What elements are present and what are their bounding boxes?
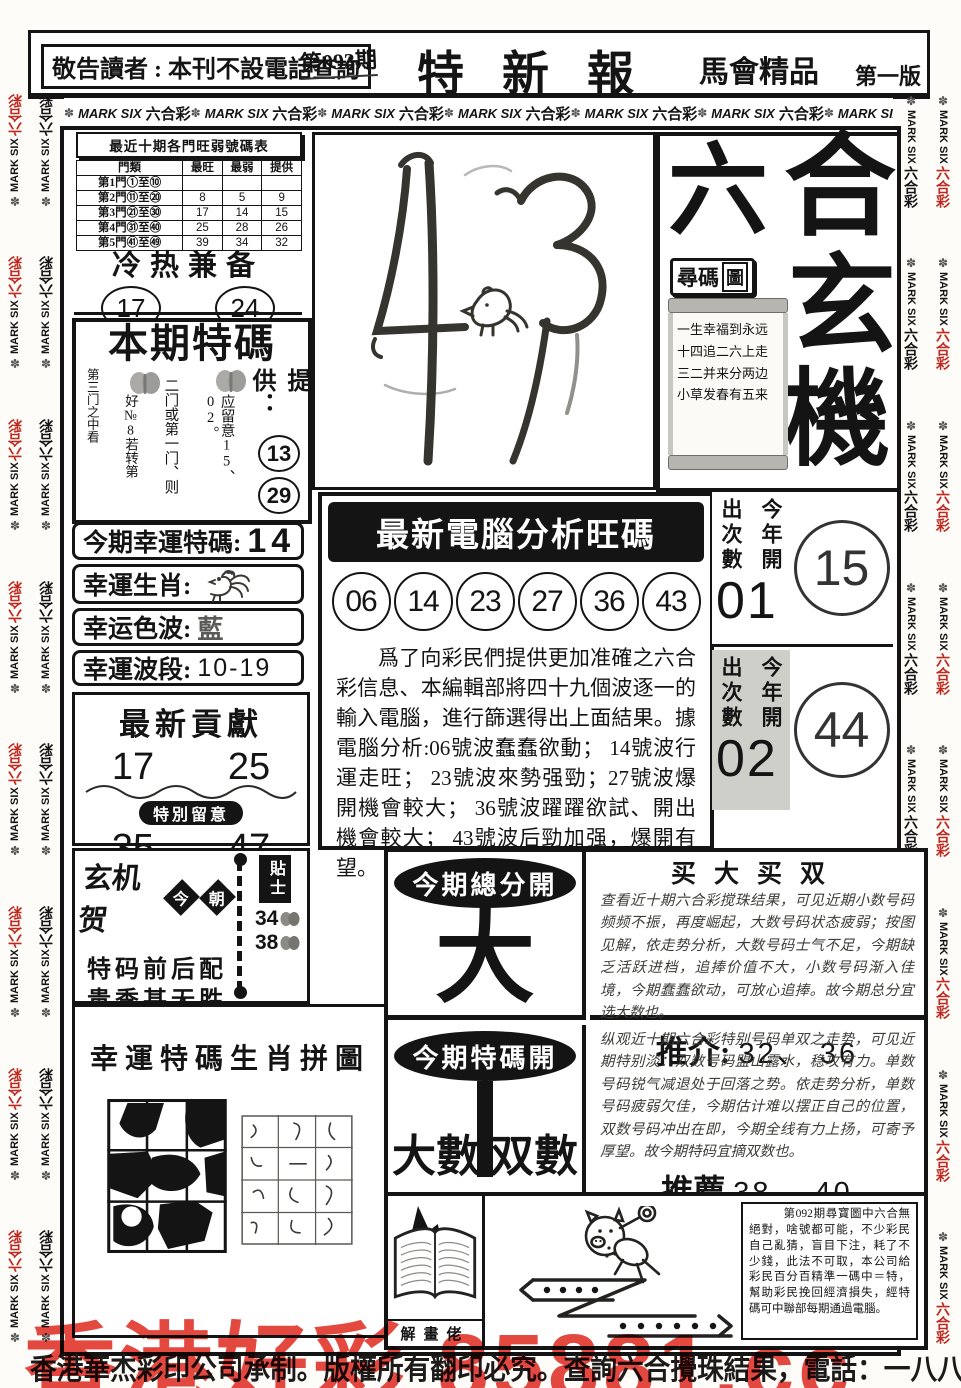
gate-cell: 第4門㉛至㊵ (77, 221, 183, 236)
give-cell: 26 (262, 221, 302, 236)
strokes-grid (241, 1115, 353, 1245)
flower-icon: ✽ (938, 256, 948, 270)
left-inner-border: ✽MARK SIX六合彩 ✽MARK SIX六合彩 ✽MARK SIX六合彩 ✽… (32, 94, 60, 1344)
table-row: 第4門㉛至㊵ 25 28 26 (77, 221, 302, 236)
xuanji-title: 玄机贺 (77, 855, 166, 939)
border-unit: ✽MARK SIX六合彩 (933, 581, 953, 695)
issue-number: 第093期 (299, 42, 378, 80)
contribution-title: 最新貢獻 (75, 699, 307, 744)
flower-icon: ✽ (906, 419, 916, 433)
hot-cell: 8 (183, 191, 223, 206)
lucky-code-label: 今期幸運特碼: (83, 523, 241, 559)
rooster-icon (197, 566, 251, 602)
lucky-range-label: 幸運波段: (83, 650, 191, 686)
divider-dot (234, 986, 247, 999)
special-open-values: 大數 双數 (388, 1120, 582, 1184)
liuhecai-text: 六合彩 (5, 906, 25, 948)
flower-icon: ✽ (906, 94, 916, 108)
buy-big-cell: 买大买双 查看近十期六合彩搅珠结果，可见近期小数号码频频不振，再度崛起，大数号码… (590, 852, 924, 1020)
total-split-badge: 今期總分開 (394, 858, 576, 908)
liuhecai-text: 六合彩 (779, 103, 824, 124)
liuhecai-text: 六合彩 (652, 103, 697, 124)
xuanji-verse-line: 特码前后配 (81, 955, 233, 986)
mark-six-text: MARK SIX (711, 106, 775, 121)
flower-icon: ✽ (906, 581, 916, 595)
border-unit: ✽MARK SIX六合彩 (824, 103, 893, 124)
flower-icon: ✽ (571, 106, 581, 120)
liuhecai-text: 六合彩 (901, 328, 921, 370)
tip-number-row: 34 (255, 907, 307, 931)
flower-icon: ✽ (938, 419, 948, 433)
table-row: 第1門①至⑩ (77, 176, 302, 191)
border-unit: ✽MARK SIX六合彩 (901, 419, 921, 533)
provide-label: 提供： (244, 368, 314, 430)
mark-six-text: MARK SIX (458, 106, 522, 121)
hot-cell: 25 (183, 221, 223, 236)
border-unit: ✽MARK SIX六合彩 (933, 1068, 953, 1182)
hot-cell: 17 (183, 206, 223, 221)
zodiac-puzzle-box: 幸運特碼生肖拼圖 (72, 1004, 388, 1338)
special-code-box: 本期特碼 第三门之中看 好№8若转第 二门或第一门、则 应留意15、02。 提供… (72, 318, 312, 524)
col-gate: 門類 (77, 161, 183, 176)
cold-hot-title: 冷热兼备 (74, 242, 302, 284)
contribution-number: 25 (228, 746, 270, 789)
number-ball: 43 (642, 572, 701, 631)
left-outer-border: ✽MARK SIX六合彩 ✽MARK SIX六合彩 ✽MARK SIX六合彩 ✽… (3, 94, 27, 1344)
seek-code-text: 尋碼 (677, 262, 719, 292)
appearance-labels: 出次數 今年開 02 (712, 650, 790, 810)
flower-icon: ✽ (10, 356, 20, 370)
big-char: 合 (784, 132, 896, 244)
mark-six-text: MARK SIX (937, 1084, 949, 1138)
flower-icon: ✽ (906, 743, 916, 757)
mark-six-text: MARK SIX (905, 435, 917, 489)
flower-icon: ✽ (10, 843, 20, 857)
border-unit: ✽MARK SIX六合彩 (933, 1230, 953, 1344)
right-outer-border: ✽MARK SIX六合彩 ✽MARK SIX六合彩 ✽MARK SIX六合彩 ✽… (929, 94, 957, 1344)
liuhecai-text: 六合彩 (901, 490, 921, 532)
xuanji-main: 玄机贺 今 朝 特码前后配 贵季甚无胜 (75, 851, 235, 1001)
flower-icon: ✽ (41, 356, 51, 370)
moth-icon (214, 368, 248, 398)
paper-subtitle: 馬會精品 (699, 47, 819, 91)
border-unit: ✽MARK SIX六合彩 (36, 743, 56, 857)
liuhecai-text: 六合彩 (933, 815, 953, 857)
mark-six-text: MARK SIX (331, 106, 395, 121)
appearance-block-02: 出次數 今年開 02 44 (712, 650, 893, 810)
border-unit: ✽MARK SIX六合彩 (697, 103, 824, 124)
scroll-top-rail (668, 298, 788, 313)
liuhecai-text: 六合彩 (933, 490, 953, 532)
flower-icon: ✽ (938, 906, 948, 920)
tip-number: 29 (258, 477, 300, 514)
tip-number: 34 (255, 907, 278, 931)
appearance-count: 02 (716, 733, 786, 785)
border-unit: ✽MARK SIX六合彩 (191, 103, 318, 124)
poem-line: 十四追二六上走 (677, 341, 779, 363)
mark-six-text: MARK SIX (937, 597, 949, 651)
liuhecai-text: 六合彩 (399, 103, 444, 124)
divider-dot (234, 853, 247, 866)
liuhecai-text: 六合彩 (5, 1068, 25, 1110)
tips-label: 貼士 (259, 855, 291, 903)
dashed-divider (237, 861, 242, 991)
flower-icon: ✽ (938, 581, 948, 595)
give-cell (262, 176, 302, 191)
tip-column-3: 二门或第一门、则 (161, 368, 177, 514)
flower-icon: ✽ (10, 1005, 20, 1019)
tip-number-row: 38 (255, 931, 307, 955)
flower-icon: ✽ (41, 518, 51, 532)
tip-column-1: 第三门之中看 (84, 368, 98, 514)
weak-cell: 28 (222, 221, 262, 236)
appearance-label: 今年開 (756, 498, 786, 573)
special-code-title: 本期特碼 (76, 322, 308, 366)
mark-six-text: MARK SIX (9, 625, 21, 679)
mark-six-text: MARK SIX (40, 300, 52, 354)
border-unit: ✽MARK SIX六合彩 (444, 103, 571, 124)
prediction-band: 今期總分開 大 今期特碼開 大數 双數 买大买双 查看近十期六合彩搅珠结果，可见… (384, 848, 928, 1196)
liuhecai-text: 六合彩 (5, 1230, 25, 1272)
mark-six-text: MARK SIX (905, 597, 917, 651)
computer-analysis-box: 最新電腦分析旺碼 06 14 23 27 36 43 爲了向彩民們提供更加准確之… (318, 492, 714, 850)
flower-icon: ✽ (938, 743, 948, 757)
computer-analysis-title: 最新電腦分析旺碼 (328, 502, 704, 562)
contribution-box: 最新貢獻 17 25 特別留意 35 47 (72, 692, 310, 846)
appearance-number-ball: 44 (794, 682, 890, 778)
flower-icon: ✽ (10, 518, 20, 532)
appearance-label: 今年開 (756, 656, 786, 731)
lucky-code-row: 今期幸運特碼: 14 (72, 522, 304, 560)
mark-six-text: MARK SIX (9, 300, 21, 354)
liuhecai-text: 六合彩 (5, 743, 25, 785)
weak-cell: 14 (222, 206, 262, 221)
puzzle-images (75, 1099, 385, 1253)
buy-big-paragraph: 查看近十期六合彩搅珠结果，可见近期小数号码频频不振，再度崛起，大数号码状态疲弱；… (600, 890, 914, 1025)
liuhecai-text: 六合彩 (5, 256, 25, 298)
mark-six-text: MARK SIX (205, 106, 269, 121)
appearance-labels: 出次數 今年開 01 (712, 492, 790, 644)
butterfly-icon (280, 911, 300, 927)
poem-line: 三二并来分两边 (677, 363, 779, 385)
liuhecai-text: 六合彩 (5, 419, 25, 461)
border-unit: ✽MARK SIX六合彩 (933, 906, 953, 1020)
appearance-label: 出次數 (716, 656, 746, 731)
mark-six-text: MARK SIX (40, 138, 52, 192)
liuhecai-text: 六合彩 (36, 743, 56, 785)
newspaper-page: 敬告讀者 : 本刊不設電話查詢 特新報 馬會精品 第一版 第093期 ✽MARK… (0, 0, 961, 1388)
liuhecai-text: 六合彩 (5, 581, 25, 623)
liuhecai-text: 六合彩 (933, 1140, 953, 1182)
mark-six-text: MARK SIX (905, 759, 917, 813)
liuhecai-text: 六合彩 (901, 166, 921, 208)
weak-cell (222, 176, 262, 191)
flower-icon: ✽ (10, 681, 20, 695)
border-unit: ✽MARK SIX六合彩 (901, 256, 921, 370)
appearance-count: 01 (716, 575, 786, 627)
special-open-badge: 今期特碼開 (394, 1031, 576, 1081)
puzzle-title: 幸運特碼生肖拼圖 (75, 1037, 385, 1077)
mark-six-text: MARK SIX (40, 1112, 52, 1166)
liuhecai-text: 六合彩 (36, 581, 56, 623)
mark-six-text: MARK SIX (937, 110, 949, 164)
number-ball: 06 (332, 572, 391, 631)
big-char: 機 (784, 368, 890, 474)
special-code-columns: 第三门之中看 好№8若转第 二门或第一门、则 应留意15、02。 提供： 13 … (76, 366, 308, 514)
mark-six-text: MARK SIX (937, 922, 949, 976)
lucky-range-value: 10-19 (197, 654, 271, 683)
lucky-range-row: 幸運波段: 10-19 (72, 650, 304, 686)
flower-icon: ✽ (191, 106, 201, 120)
table-header-row: 門類 最旺 最弱 提供 (77, 161, 302, 176)
border-unit: ✽MARK SIX六合彩 (36, 419, 56, 533)
col-weak: 最弱 (222, 161, 262, 176)
liuhecai-text: 六合彩 (901, 653, 921, 695)
gate-cell: 第2門⑪至⑳ (77, 191, 183, 206)
liuhecai-text: 六合彩 (933, 653, 953, 695)
flower-icon: ✽ (938, 1068, 948, 1082)
hot-cold-table: 門類 最旺 最弱 提供 第1門①至⑩ 第2門⑪至⑳ 8 5 9 第3門㉑至㉚ 1… (76, 160, 302, 251)
liuhecai-text: 六合彩 (36, 94, 56, 136)
liuhecai-text: 六合彩 (36, 419, 56, 461)
border-unit: ✽MARK SIX六合彩 (933, 419, 953, 533)
watermark-text: 香港好彩 85881.cc (24, 1292, 853, 1388)
lucky-color-label: 幸运色波: (83, 609, 191, 645)
liuhecai-text: 六合彩 (526, 103, 571, 124)
flower-icon: ✽ (41, 194, 51, 208)
sketch-43-box (312, 132, 656, 490)
mystic-box: 六 合 玄 機 尋碼 圖 一生幸福到永远 十四追二六上走 三二并来分两边 小草发… (656, 132, 901, 492)
masthead-band: 敬告讀者 : 本刊不設電話查詢 特新報 馬會精品 第一版 (28, 30, 930, 99)
special-para-cell: 纵观近十期六合彩特别号码单双之走势，可见近期特别淡：双数号码盟山露水，稳攻有力。… (590, 1025, 924, 1192)
flower-icon: ✽ (444, 106, 454, 120)
border-unit: ✽MARK SIX六合彩 (5, 419, 25, 533)
border-unit: ✽MARK SIX六合彩 (5, 256, 25, 370)
border-unit: ✽MARK SIX六合彩 (571, 103, 698, 124)
appearance-block-01: 出次數 今年開 01 15 (712, 492, 893, 647)
lucky-code-value: 14 (247, 522, 295, 561)
border-unit: ✽MARK SIX六合彩 (36, 581, 56, 695)
mark-six-text: MARK SIX (40, 625, 52, 679)
flower-icon: ✽ (41, 843, 51, 857)
poem-body: 一生幸福到永远 十四追二六上走 三二并来分两边 小草发春有五来 (668, 313, 788, 455)
seek-code-label: 尋碼 圖 (670, 258, 755, 296)
gate-cell: 第3門㉑至㉚ (77, 206, 183, 221)
mark-six-text: MARK SIX (40, 787, 52, 841)
border-unit: ✽MARK SIX六合彩 (5, 1230, 25, 1344)
mark-six-text: MARK SIX (937, 759, 949, 813)
flower-icon: ✽ (906, 256, 916, 270)
poem-line: 小草发春有五来 (677, 384, 779, 406)
top-border-strip: ✽MARK SIX六合彩 ✽MARK SIX六合彩 ✽MARK SIX六合彩 ✽… (64, 96, 893, 130)
diamond-char-text: 朝 (210, 885, 226, 909)
border-unit: ✽MARK SIX六合彩 (901, 743, 921, 857)
liuhecai-text: 六合彩 (933, 166, 953, 208)
border-unit: ✽MARK SIX六合彩 (5, 581, 25, 695)
number-ball: 27 (518, 572, 577, 631)
special-open-left: 大數 (392, 1120, 480, 1184)
edition-label: 第一版 (855, 59, 921, 91)
mark-six-text: MARK SIX (9, 1112, 21, 1166)
border-unit: ✽MARK SIX六合彩 (5, 743, 25, 857)
total-split-value: 大 (388, 910, 582, 1010)
diamond-char: 朝 (199, 879, 236, 916)
moth-icon (128, 370, 162, 400)
hot-cell (183, 176, 223, 191)
border-unit: ✽MARK SIX六合彩 (901, 581, 921, 695)
flower-icon: ✽ (41, 1005, 51, 1019)
border-unit: ✽MARK SIX六合彩 (64, 103, 191, 124)
poem-line: 一生幸福到永远 (677, 319, 779, 341)
liuhecai-text: 六合彩 (272, 103, 317, 124)
liuhecai-text: 六合彩 (933, 1302, 953, 1344)
table-row: 第3門㉑至㉚ 17 14 15 (77, 206, 302, 221)
border-unit: ✽MARK SIX六合彩 (933, 743, 953, 857)
total-split-cell: 今期總分開 大 (388, 852, 586, 1020)
appearance-number-ball: 15 (794, 520, 890, 616)
number-ball: 14 (394, 572, 453, 631)
flower-icon: ✽ (10, 1168, 20, 1182)
lucky-color-row: 幸运色波: 藍 (72, 608, 304, 646)
border-unit: ✽MARK SIX六合彩 (36, 1068, 56, 1182)
flower-icon: ✽ (317, 106, 327, 120)
cold-hot-section: 冷热兼备 17 24 (74, 242, 302, 315)
mark-six-text: MARK SIX (9, 463, 21, 517)
border-unit: ✽MARK SIX六合彩 (5, 906, 25, 1020)
paper-title: 特新報 (417, 35, 672, 104)
analysis-numbers: 06 14 23 27 36 43 (322, 572, 710, 631)
diamond-char-text: 今 (174, 885, 190, 909)
col-give: 提供 (262, 161, 302, 176)
lucky-zodiac-label: 幸運生肖: (83, 566, 191, 602)
gate-cell: 第1門①至⑩ (77, 176, 183, 191)
lucky-zodiac-row: 幸運生肖: (72, 564, 304, 604)
seek-code-boxed-char: 圖 (722, 262, 748, 292)
provide-column: 提供： 13 29 (258, 368, 300, 514)
flower-icon: ✽ (64, 106, 74, 120)
mark-six-text: MARK SIX (937, 435, 949, 489)
special-paragraph: 纵观近十期六合彩特别号码单双之走势，可见近期特别淡：双数号码盟山露水，稳攻有力。… (600, 1029, 914, 1164)
liuhecai-text: 六合彩 (36, 1068, 56, 1110)
xuanji-title-row: 玄机贺 今 朝 (81, 855, 233, 939)
special-note-badge: 特別留意 (139, 801, 243, 825)
give-cell: 9 (262, 191, 302, 206)
flower-icon: ✽ (10, 1330, 20, 1344)
flower-icon: ✽ (41, 681, 51, 695)
tip-number: 38 (255, 931, 278, 955)
number-ball: 23 (456, 572, 515, 631)
big-char: 六 (668, 142, 768, 242)
liuhecai-text: 六合彩 (36, 256, 56, 298)
border-unit: ✽MARK SIX六合彩 (5, 1068, 25, 1182)
mark-six-text: MARK SIX (78, 106, 142, 121)
special-open-right: 双數 (490, 1120, 578, 1184)
mark-six-text: MARK SIX (905, 110, 917, 164)
give-cell: 15 (262, 206, 302, 221)
tip-number: 13 (258, 435, 300, 472)
diamond-char: 今 (163, 879, 200, 916)
border-unit: ✽MARK SIX六合彩 (933, 94, 953, 208)
mark-six-text: MARK SIX (9, 950, 21, 1004)
flower-icon: ✽ (41, 1168, 51, 1182)
xuanji-box: 玄机贺 今 朝 特码前后配 贵季甚无胜 貼士 34 38 (72, 848, 310, 1004)
table-row: 第2門⑪至⑳ 8 5 9 (77, 191, 302, 206)
puzzle-image (107, 1099, 227, 1253)
liuhecai-text: 六合彩 (933, 977, 953, 1019)
liuhecai-text: 六合彩 (146, 103, 191, 124)
mark-six-text: MARK SIX (40, 463, 52, 517)
mark-six-text: MARK SIX (937, 272, 949, 326)
flower-icon: ✽ (938, 1230, 948, 1244)
analysis-paragraph: 爲了向彩民們提供更加准確之六合彩信息、本編輯部將四十九個波逐一的輸入電腦，進行篩… (322, 631, 710, 883)
flower-icon: ✽ (697, 106, 707, 120)
poem-scroll: 一生幸福到永远 十四追二六上走 三二并来分两边 小草发春有五来 (668, 298, 788, 478)
special-open-cell: 今期特碼開 大數 双數 (388, 1025, 586, 1192)
liuhecai-text: 六合彩 (36, 906, 56, 948)
mark-six-text: MARK SIX (905, 272, 917, 326)
border-unit: ✽MARK SIX六合彩 (317, 103, 444, 124)
table-title: 最近十期各門旺弱號碼表 (76, 132, 302, 158)
xuanji-tips-column: 貼士 34 38 (235, 851, 307, 1001)
mark-six-text: MARK SIX (9, 1274, 21, 1328)
number-ball: 36 (580, 572, 639, 631)
big-char: 玄 (788, 254, 896, 362)
mark-six-text: MARK SIX (9, 787, 21, 841)
border-unit: ✽MARK SIX六合彩 (36, 94, 56, 208)
col-hot: 最旺 (183, 161, 223, 176)
mark-six-text: MARK SIX (937, 1246, 949, 1300)
border-unit: ✽MARK SIX六合彩 (36, 906, 56, 1020)
flower-icon: ✽ (938, 94, 948, 108)
liuhecai-text: 六合彩 (933, 328, 953, 370)
appearance-label: 出次數 (716, 498, 746, 573)
sketch-43-drawing (315, 135, 647, 481)
contribution-number: 17 (112, 746, 154, 789)
butterfly-icon (280, 935, 300, 951)
border-unit: ✽MARK SIX六合彩 (901, 94, 921, 208)
scroll-bottom-rail (668, 455, 788, 470)
weak-cell: 5 (222, 191, 262, 206)
liuhecai-text: 六合彩 (36, 1230, 56, 1272)
mark-six-text: MARK SIX (585, 106, 649, 121)
mark-six-text: MARK SIX (40, 950, 52, 1004)
hot-cold-table-box: 最近十期各門旺弱號碼表 門類 最旺 最弱 提供 第1門①至⑩ 第2門⑪至⑳ 8 … (76, 132, 302, 251)
flower-icon: ✽ (824, 106, 834, 120)
liuhecai-text: 六合彩 (5, 94, 25, 136)
buy-big-title: 买大买双 (600, 854, 914, 890)
border-unit: ✽MARK SIX六合彩 (5, 94, 25, 208)
lucky-color-value: 藍 (197, 609, 223, 646)
mark-six-text: MARK SIX (9, 138, 21, 192)
mark-six-text: MARK SIX (838, 106, 893, 121)
border-unit: ✽MARK SIX六合彩 (36, 256, 56, 370)
border-unit: ✽MARK SIX六合彩 (933, 256, 953, 370)
flower-icon: ✽ (10, 194, 20, 208)
